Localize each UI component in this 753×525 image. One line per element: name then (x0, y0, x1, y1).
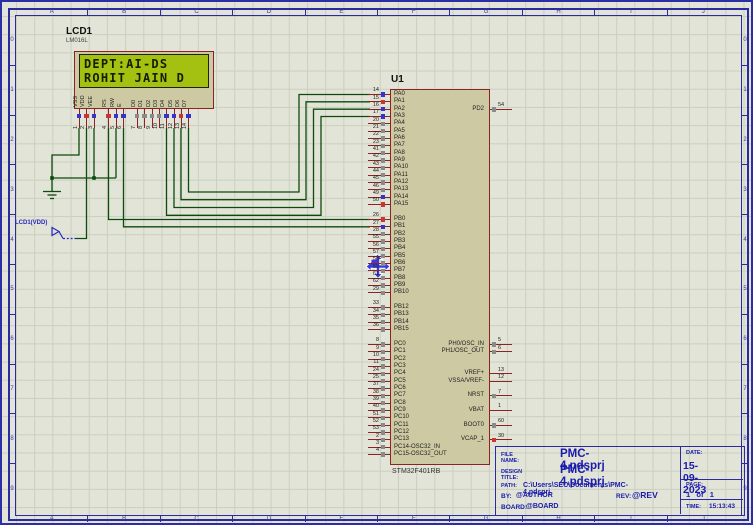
mcu-pin-state-PH0/OSC_IN (492, 342, 497, 347)
lcd-screen-line1: DEPT:AI-DS (84, 58, 208, 72)
mcu-pin-number-PB0: 26 (362, 212, 379, 219)
lcd-pin-state-D2 (150, 114, 155, 119)
mcu-pin-name-PA5: PA5 (394, 128, 405, 135)
mcu-pin-state-PC14-OSC32_IN (381, 445, 386, 450)
mcu-pin-state-PH1/OSC_OUT (492, 350, 497, 355)
lcd-pin-name-D3: D3 (153, 100, 160, 107)
mcu-pin-name-PB3: PB3 (394, 238, 405, 245)
mcu-pin-state-VCAP_1 (492, 438, 497, 443)
mcu-pin-name-PB8: PB8 (394, 275, 405, 282)
mcu-pin-name-PB2: PB2 (394, 231, 405, 238)
mcu-pin-name-PA10: PA10 (394, 164, 408, 171)
wire-e-pb1[interactable] (124, 128, 371, 227)
mcu-pin-state-PA15 (381, 202, 386, 207)
lcd-pin-state-VSS (77, 114, 82, 119)
mcu-pin-number-PA5: 21 (362, 124, 379, 131)
mcu-pin-name-VCAP_1: VCAP_1 (390, 436, 484, 443)
mcu-pin-state-PB5 (381, 254, 386, 259)
mcu-pin-number-PA15: 50 (362, 197, 379, 204)
mcu-pin-number-PA9: 42 (362, 153, 379, 160)
wire-vdd-terminal[interactable] (76, 128, 87, 239)
mcu-pin-name-NRST: NRST (390, 392, 484, 399)
page-label: PAGE: (686, 482, 703, 488)
file-name-label: FILE NAME: (501, 452, 519, 464)
mcu-pin-number-PB10: 29 (362, 286, 379, 293)
mcu-pin-state-PC0 (381, 342, 386, 347)
path-label: PATH: (501, 483, 517, 489)
mcu-pin-name-PB4: PB4 (394, 245, 405, 252)
lcd-pin-state-D4 (164, 114, 169, 119)
lcd-pin-name-D6: D6 (175, 100, 182, 107)
mcu-pin-state-PA8 (381, 151, 386, 156)
lcd-ref-label: LCD1 (66, 26, 92, 37)
lcd-pin-name-VDD: VDD (80, 95, 87, 107)
mcu-pin-name-PA13: PA13 (394, 186, 408, 193)
mcu-pin-number-PC2: 10 (362, 352, 379, 359)
mcu-pin-name-PC3: PC3 (394, 363, 406, 370)
mcu-pin-name-PB6: PB6 (394, 260, 405, 267)
mcu-pin-name-PB9: PB9 (394, 282, 405, 289)
lcd-pin-number-D2: 9 (146, 125, 153, 128)
mcu-pin-number-PA3: 17 (362, 109, 379, 116)
time-value: 15:13:43 (709, 503, 735, 510)
mcu-pin-number-PB1: 27 (362, 220, 379, 227)
mcu-pin-name-PB5: PB5 (394, 253, 405, 260)
mcu-pin-number-PB5: 57 (362, 249, 379, 256)
lcd-pin-name-VSS: VSS (73, 96, 80, 107)
lcd-pin-state-VDD (84, 114, 89, 119)
mcu-pin-number-PC8: 39 (362, 396, 379, 403)
board-value: @BOARD (526, 503, 559, 510)
mcu-pin-number-NRST: 7 (498, 389, 516, 396)
mcu-pin-number-BOOT0: 60 (498, 418, 516, 425)
wire-rs-pb0[interactable] (109, 128, 371, 220)
mcu-pin-state-PB4 (381, 247, 386, 252)
mcu-pin-number-PC15-OSC32_OUT: 4 (362, 447, 379, 454)
mcu-pin-name-PB12: PB12 (394, 304, 409, 311)
mcu-pin-name-PB14: PB14 (394, 319, 409, 326)
mcu-pin-state-PC4 (381, 372, 386, 377)
mcu-pin-state-PA6 (381, 136, 386, 141)
mcu-pin-state-PB12 (381, 305, 386, 310)
mcu-pin-number-PC0: 8 (362, 337, 379, 344)
mcu-pin-name-PD2: PD2 (390, 106, 484, 113)
lcd-pin-number-D1: 8 (138, 125, 145, 128)
mcu-pin-name-PC15-OSC32_OUT: PC15-OSC32_OUT (394, 451, 447, 458)
mcu-pin-name-PA11: PA11 (394, 172, 408, 179)
mcu-pin-state-PA9 (381, 158, 386, 163)
lcd-pin-state-D5 (172, 114, 177, 119)
lcd-pin-state-RW (114, 114, 119, 119)
mcu-pin-number-PA13: 46 (362, 183, 379, 190)
mcu-pin-number-PC4: 24 (362, 367, 379, 374)
mcu-pin-name-PH0/OSC_IN: PH0/OSC_IN (390, 341, 484, 348)
mcu-pin-number-PB3: 55 (362, 234, 379, 241)
mcu-pin-name-PA0: PA0 (394, 91, 405, 98)
mcu-pin-state-PB8 (381, 276, 386, 281)
mcu-pin-number-PA12: 45 (362, 175, 379, 182)
lcd-pin-number-D7: 14 (182, 122, 189, 128)
mcu-pin-name-PA3: PA3 (394, 113, 405, 120)
mcu-pin-number-PB6: 58 (362, 256, 379, 263)
mcu-pin-name-PB10: PB10 (394, 289, 409, 296)
lcd-pin-name-D1: D1 (138, 100, 145, 107)
lcd-pin-state-VEE (92, 114, 97, 119)
mcu-pin-name-PC14-OSC32_IN: PC14-OSC32_IN (394, 444, 440, 451)
lcd-pin-state-D0 (135, 114, 140, 119)
mcu-pin-state-NRST (492, 394, 497, 399)
mcu-pin-state-PC8 (381, 401, 386, 406)
lcd-pin-number-D6: 13 (175, 122, 182, 128)
mcu-pin-number-PB4: 56 (362, 242, 379, 249)
mcu-pin-name-VREF+: VREF+ (390, 370, 484, 377)
mcu-pin-number-PC13: 2 (362, 433, 379, 440)
mcu-pin-state-PB9 (381, 283, 386, 288)
mcu-pin-number-PB12: 33 (362, 300, 379, 307)
mcu-pin-state-PA2 (381, 107, 386, 112)
mcu-pin-number-PA14: 49 (362, 190, 379, 197)
mcu-pin-state-PC10 (381, 416, 386, 421)
mcu-pin-number-PA0: 14 (362, 87, 379, 94)
lcd-pin-number-D0: 7 (131, 125, 138, 128)
mcu-pin-state-PB1 (381, 225, 386, 230)
mcu-pin-name-PB1: PB1 (394, 223, 405, 230)
mcu-pin-state-PA7 (381, 144, 386, 149)
lcd-pin-number-E: 6 (117, 125, 124, 128)
mcu-pin-name-PA14: PA14 (394, 194, 408, 201)
mcu-pin-state-PA14 (381, 195, 386, 200)
mcu-pin-number-PA2: 16 (362, 102, 379, 109)
mcu-pin-state-PA11 (381, 173, 386, 178)
mcu-pin-number-PC5: 25 (362, 374, 379, 381)
lcd-screen: DEPT:AI-DS ROHIT JAIN D (79, 54, 209, 88)
mcu-pin-state-PC6 (381, 386, 386, 391)
design-title-label: DESIGN TITLE: (501, 469, 522, 481)
wire-d5-pa2[interactable] (174, 109, 370, 207)
wire-vss-gnd[interactable] (52, 128, 79, 178)
lcd-pin-number-D3: 10 (153, 122, 160, 128)
mcu-pin-state-PB15 (381, 327, 386, 332)
mcu-pin-number-PA10: 43 (362, 161, 379, 168)
mcu-pin-name-PB7: PB7 (394, 267, 405, 274)
mcu-pin-number-PC6: 37 (362, 381, 379, 388)
mcu-pin-number-PH1/OSC_OUT: 6 (498, 345, 516, 352)
mcu-pin-state-PC11 (381, 423, 386, 428)
mcu-pin-state-PA0 (381, 92, 386, 97)
mcu-ref-label: U1 (391, 74, 404, 85)
mcu-pin-number-PD2: 54 (498, 102, 516, 109)
mcu-pin-state-PC3 (381, 364, 386, 369)
mcu-pin-number-PC1: 9 (362, 345, 379, 352)
mcu-pin-state-PB14 (381, 320, 386, 325)
mcu-pin-state-PC15-OSC32_OUT (381, 452, 386, 457)
mcu-pin-number-PA6: 22 (362, 131, 379, 138)
mcu-pin-state-PA1 (381, 100, 386, 105)
by-value: @AUTHOR (516, 492, 553, 499)
lcd-pin-name-D7: D7 (182, 100, 189, 107)
mcu-pin-number-PC12: 53 (362, 425, 379, 432)
lcd-pin-name-D0: D0 (131, 100, 138, 107)
mcu-pin-state-PB3 (381, 239, 386, 244)
mcu-pin-state-PC13 (381, 438, 386, 443)
mcu-pin-name-PC10: PC10 (394, 414, 409, 421)
lcd-screen-line2: ROHIT JAIN D (84, 72, 208, 86)
mcu-pin-number-VSSA/VREF-: 12 (498, 374, 516, 381)
mcu-pin-name-PA6: PA6 (394, 135, 405, 142)
mcu-pin-state-PB2 (381, 232, 386, 237)
mcu-pin-name-PA15: PA15 (394, 201, 408, 208)
mcu-pin-name-VSSA/VREF-: VSSA/VREF- (390, 378, 484, 385)
mcu-pin-name-PA7: PA7 (394, 142, 405, 149)
time-label: TIME: (686, 504, 701, 510)
mcu-pin-name-PC6: PC6 (394, 385, 406, 392)
mcu-pin-number-VREF+: 13 (498, 367, 516, 374)
by-label: BY: (501, 493, 512, 500)
mcu-pin-number-VBAT: 1 (498, 403, 516, 410)
mcu-pin-number-PB13: 34 (362, 308, 379, 315)
lcd-pin-name-VEE: VEE (88, 96, 95, 107)
lcd-pin-number-D4: 11 (160, 123, 167, 129)
mcu-pin-number-PC7: 38 (362, 389, 379, 396)
lcd-pin-state-RS (106, 114, 111, 119)
mcu-pin-number-PA1: 15 (362, 95, 379, 102)
mcu-pin-number-PC9: 40 (362, 403, 379, 410)
mcu-pin-number-PH0/OSC_IN: 5 (498, 337, 516, 344)
board-label: BOARD: (501, 504, 527, 511)
proteus-schematic-sheet[interactable]: ABCDEFGHIJ ABCDEFGHIJ 0123456789 0123456… (0, 0, 753, 525)
lcd-pin-name-D4: D4 (160, 100, 167, 107)
mcu-pin-number-PC14-OSC32_IN: 3 (362, 440, 379, 447)
mcu-pin-state-PC5 (381, 379, 386, 384)
mcu-pin-state-PB0 (381, 217, 386, 222)
mcu-pin-number-PA8: 41 (362, 146, 379, 153)
mcu-pin-state-PC2 (381, 357, 386, 362)
mcu-pin-number-VCAP_1: 30 (498, 433, 516, 440)
lcd-pin-state-D3 (157, 114, 162, 119)
lcd-pin-number-RS: 4 (102, 125, 109, 128)
mcu-pin-name-PC8: PC8 (394, 400, 406, 407)
mcu-pin-number-PB9: 62 (362, 278, 379, 285)
mcu-pin-state-PB7 (381, 269, 386, 274)
mcu-pin-number-PA4: 20 (362, 117, 379, 124)
lcd-pin-name-D5: D5 (168, 100, 175, 107)
lcd-pin-name-RS: RS (102, 99, 109, 107)
mcu-pin-state-PB13 (381, 313, 386, 318)
rev-label: REV: (616, 493, 631, 500)
mcu-pin-name-BOOT0: BOOT0 (390, 422, 484, 429)
mcu-pin-number-PC3: 11 (362, 359, 379, 366)
lcd-pin-name-E: E (117, 103, 124, 107)
wire-d4-pa3[interactable] (167, 117, 371, 216)
lcd-pin-state-D7 (186, 114, 191, 119)
mcu-pin-state-PA3 (381, 114, 386, 119)
mcu-pin-number-PB2: 28 (362, 227, 379, 234)
mcu-pin-name-PA8: PA8 (394, 150, 405, 157)
mcu-pin-name-PA9: PA9 (394, 157, 405, 164)
page-value: 1 of 1 (686, 490, 714, 499)
lcd-pin-number-D5: 12 (168, 122, 175, 128)
power-terminal-label[interactable]: LCD1(VDD) (15, 220, 47, 226)
mcu-pin-number-PA7: 23 (362, 139, 379, 146)
lcd-model-label: LM016L (66, 38, 88, 44)
mcu-pin-state-PC12 (381, 430, 386, 435)
mcu-pin-number-PA11: 44 (362, 168, 379, 175)
mcu-pin-state-PA13 (381, 188, 386, 193)
mcu-pin-state-PB6 (381, 261, 386, 266)
mcu-part-label: STM32F401RB (392, 468, 440, 475)
lcd-pin-name-D2: D2 (146, 100, 153, 107)
lcd-pin-state-D1 (142, 114, 147, 119)
mcu-pin-state-PA12 (381, 180, 386, 185)
mcu-pin-name-PC12: PC12 (394, 429, 409, 436)
mcu-pin-name-PB0: PB0 (394, 216, 405, 223)
lcd-pin-number-VSS: 1 (73, 125, 80, 128)
mcu-pin-state-PA10 (381, 166, 386, 171)
mcu-pin-state-PA4 (381, 122, 386, 127)
mcu-pin-number-PB7: 59 (362, 264, 379, 271)
date-label: DATE: (686, 450, 702, 456)
mcu-pin-state-PC7 (381, 394, 386, 399)
mcu-pin-number-PB8: 61 (362, 271, 379, 278)
mcu-pin-number-PC11: 52 (362, 418, 379, 425)
mcu-pin-number-PC10: 51 (362, 411, 379, 418)
mcu-pin-name-PH1/OSC_OUT: PH1/OSC_OUT (390, 348, 484, 355)
mcu-pin-number-PB15: 36 (362, 322, 379, 329)
mcu-pin-name-PA12: PA12 (394, 179, 408, 186)
mcu-pin-state-PA5 (381, 129, 386, 134)
lcd-pin-number-RW: 5 (110, 125, 117, 128)
mcu-pin-name-PB15: PB15 (394, 326, 409, 333)
mcu-pin-name-PA1: PA1 (394, 98, 405, 105)
mcu-pin-state-PB10 (381, 291, 386, 296)
lcd-pin-state-D6 (179, 114, 184, 119)
mcu-pin-state-PC1 (381, 350, 386, 355)
mcu-pin-state-PD2 (492, 107, 497, 112)
lcd-pin-state-E (121, 114, 126, 119)
lcd-pin-number-VDD: 2 (80, 125, 87, 128)
mcu-pin-name-PB13: PB13 (394, 311, 409, 318)
lcd-pin-number-VEE: 3 (88, 125, 95, 128)
rev-value: @REV (632, 490, 658, 500)
mcu-pin-state-BOOT0 (492, 423, 497, 428)
mcu-pin-number-PB14: 35 (362, 315, 379, 322)
mcu-pin-name-PC2: PC2 (394, 356, 406, 363)
mcu-pin-name-PA4: PA4 (394, 120, 405, 127)
mcu-pin-state-PC9 (381, 408, 386, 413)
mcu-pin-name-VBAT: VBAT (390, 407, 484, 414)
power-terminal-symbol[interactable] (52, 228, 76, 239)
lcd-pin-name-RW: RW (110, 98, 117, 107)
